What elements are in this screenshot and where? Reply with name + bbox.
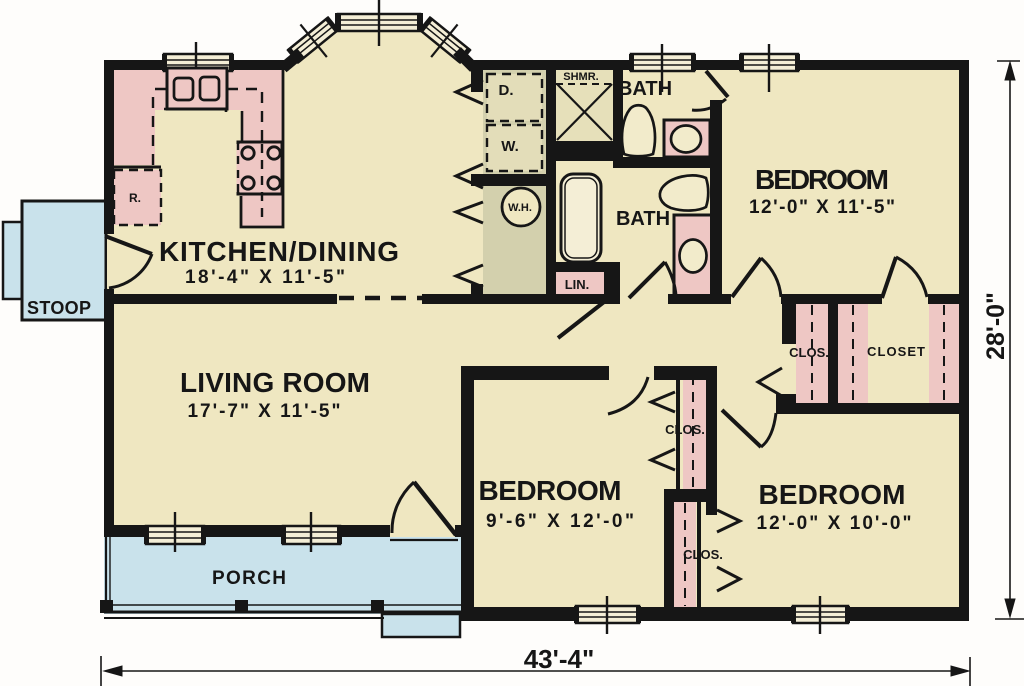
svg-text:BEDROOM: BEDROOM (479, 475, 622, 506)
svg-text:PORCH: PORCH (212, 568, 286, 589)
svg-text:D.: D. (499, 82, 514, 99)
svg-text:BEDROOM: BEDROOM (755, 164, 889, 195)
svg-text:CLOS.: CLOS. (665, 422, 705, 437)
svg-text:R.: R. (129, 191, 141, 205)
svg-text:CLOS.: CLOS. (683, 547, 723, 562)
svg-text:BATH: BATH (618, 78, 672, 100)
svg-text:W.: W. (501, 138, 519, 155)
svg-text:BATH: BATH (616, 208, 670, 230)
svg-text:43'-4": 43'-4" (524, 644, 595, 674)
svg-text:LIVING ROOM: LIVING ROOM (180, 367, 370, 398)
svg-text:CLOS.: CLOS. (789, 345, 829, 360)
svg-text:KITCHEN/DINING: KITCHEN/DINING (159, 236, 399, 267)
svg-text:W.H.: W.H. (508, 202, 532, 214)
svg-text:CLOSET: CLOSET (867, 344, 925, 359)
svg-text:28'-0": 28'-0" (982, 292, 1010, 360)
svg-text:SHMR.: SHMR. (563, 71, 598, 83)
svg-text:LIN.: LIN. (565, 277, 590, 292)
svg-text:12'-0" X 11'-5": 12'-0" X 11'-5" (749, 197, 895, 218)
svg-text:STOOP: STOOP (27, 298, 91, 318)
svg-text:BEDROOM: BEDROOM (759, 479, 906, 510)
